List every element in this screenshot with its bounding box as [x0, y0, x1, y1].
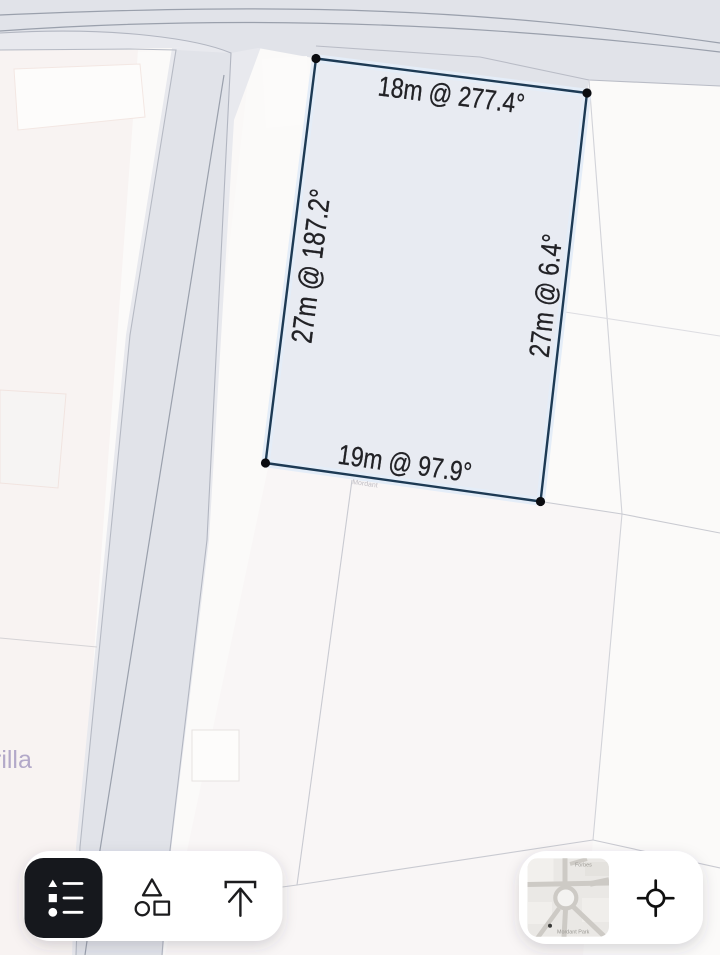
svg-text:Mordant Park: Mordant Park — [557, 930, 590, 936]
svg-text:Forbes: Forbes — [575, 863, 592, 869]
svg-text:rilla: rilla — [0, 746, 32, 774]
